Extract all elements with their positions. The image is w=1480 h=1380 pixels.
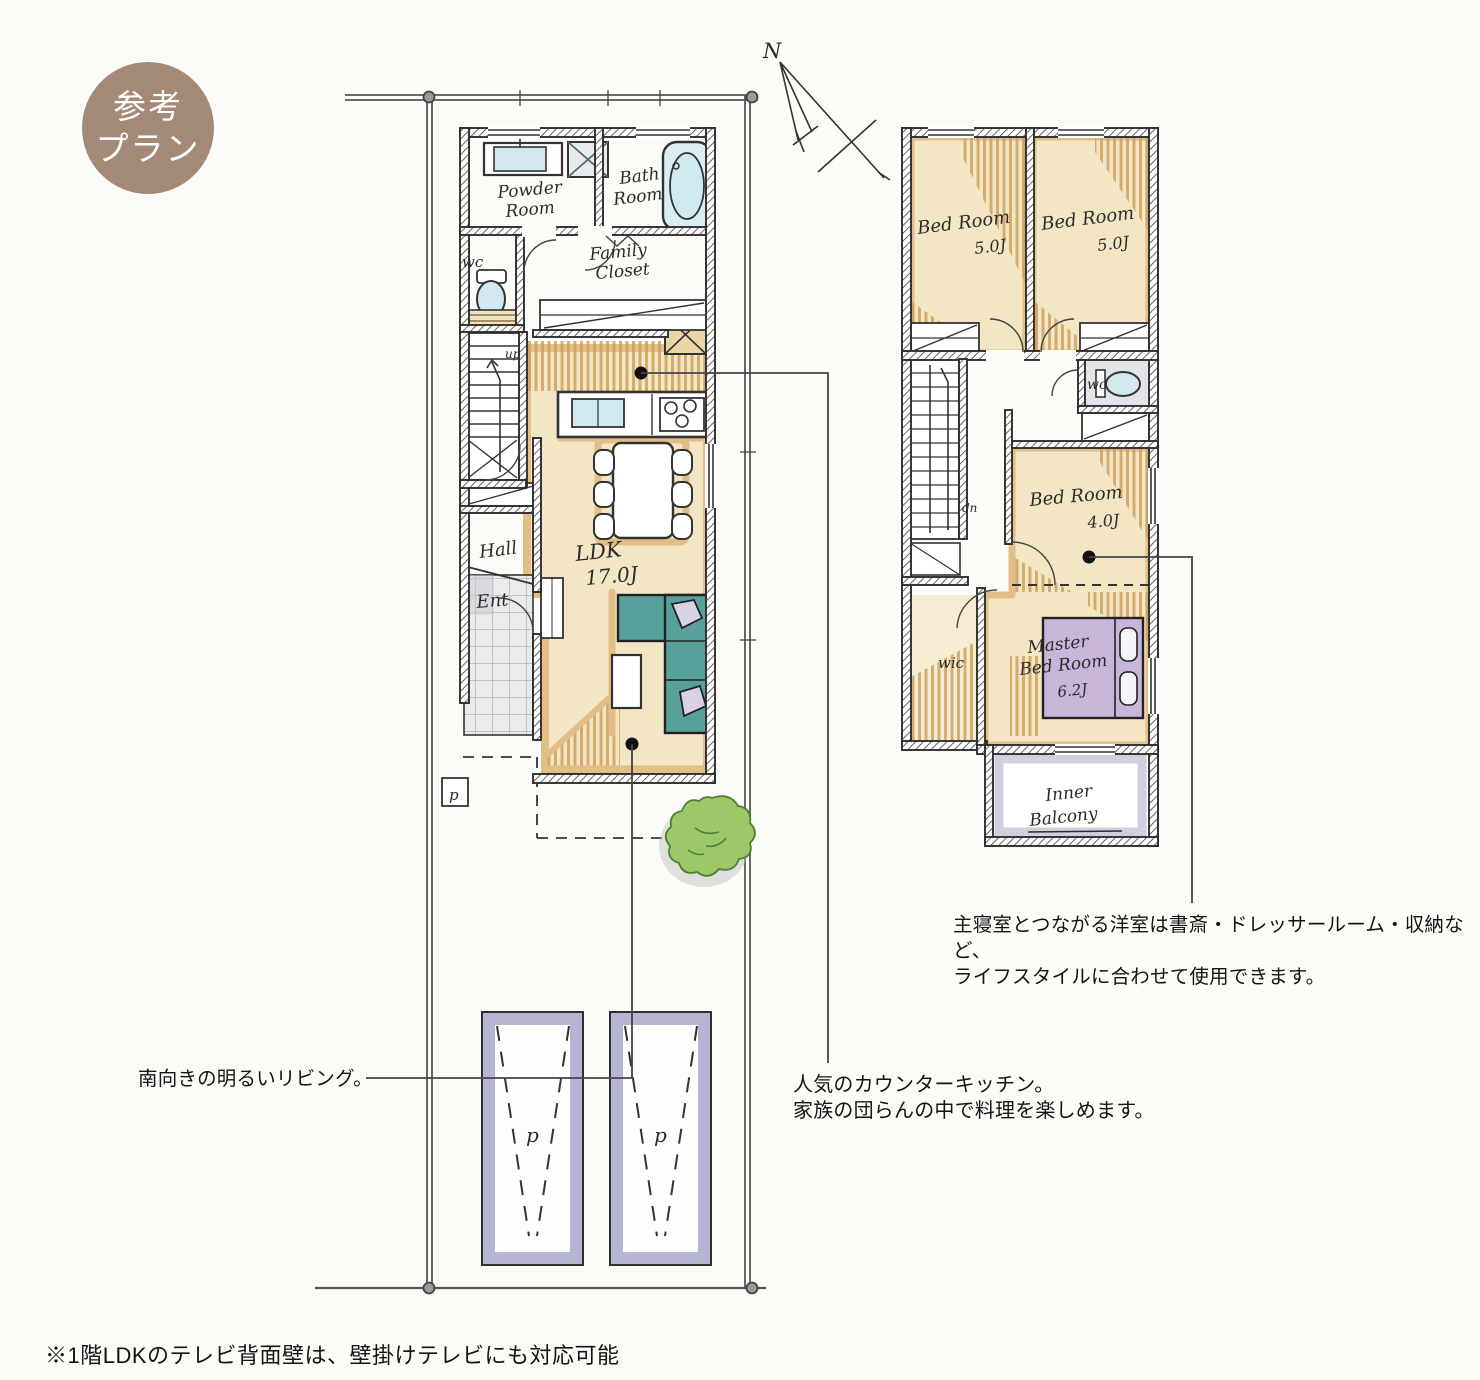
family-closet-shelf bbox=[540, 300, 708, 330]
label-wc-2f: wc bbox=[1087, 377, 1107, 393]
footnote: ※1階LDKのテレビ背面壁は、壁掛けテレビにも対応可能 bbox=[45, 1338, 620, 1370]
north-label: N bbox=[762, 39, 782, 63]
annotation-kitchen-line2: 家族の団らんの中で料理を楽しめます。 bbox=[793, 1098, 1155, 1124]
north-arrow: N bbox=[762, 39, 890, 180]
annotation-bedroom-line1: 主寝室とつながる洋室は書斎・ドレッサールーム・収納など、 bbox=[953, 912, 1480, 964]
page: 参考 プラン bbox=[0, 0, 1480, 1380]
label-ent: Ent bbox=[475, 589, 510, 613]
powder-sink bbox=[494, 147, 546, 171]
annotation-bedroom-line2: ライフスタイルに合わせて使用できます。 bbox=[953, 964, 1480, 990]
label-ldk-size: 17.0J bbox=[584, 561, 639, 590]
label-bath-2: Room bbox=[611, 184, 663, 210]
parking-label-right: p bbox=[654, 1123, 667, 1147]
dining-table bbox=[613, 443, 673, 538]
pillow-1 bbox=[1120, 628, 1137, 661]
label-wic: wic bbox=[938, 654, 965, 672]
annotation-bedroom: 主寝室とつながる洋室は書斎・ドレッサールーム・収納など、 ライフスタイルに合わせ… bbox=[953, 912, 1480, 990]
storage-2f bbox=[1082, 413, 1149, 441]
floor1-plan: Powder Room Bath Room wc Family Closet u… bbox=[442, 126, 755, 1265]
label-ldk: LDK bbox=[573, 537, 624, 566]
label-dn: dn bbox=[962, 501, 977, 515]
parking-stall-right: p bbox=[610, 1012, 711, 1265]
label-powder-2: Room bbox=[504, 198, 556, 222]
bed1-closet bbox=[911, 323, 979, 353]
floorplan-drawing: Powder Room Bath Room wc Family Closet u… bbox=[0, 0, 1480, 1380]
pole-marker: p bbox=[442, 778, 468, 806]
stairs-2f bbox=[909, 359, 960, 575]
floor2-plan: Bed Room 5.0J Bed Room 5.0J wc dn Bed Ro… bbox=[902, 126, 1159, 846]
annotation-kitchen: 人気のカウンターキッチン。 家族の団らんの中で料理を楽しめます。 bbox=[793, 1072, 1155, 1124]
powder-room bbox=[484, 139, 562, 175]
kitchen-counter bbox=[558, 392, 710, 437]
label-bed2-size: 5.0J bbox=[1096, 232, 1132, 255]
label-hall: Hall bbox=[477, 537, 518, 563]
bed2-closet bbox=[1080, 323, 1149, 353]
bathtub bbox=[663, 142, 711, 230]
annotation-living: 南向きの明るいリビング。 bbox=[138, 1066, 373, 1092]
pillow-2 bbox=[1120, 672, 1137, 705]
label-master-size: 6.2J bbox=[1057, 680, 1090, 701]
garden-tree bbox=[659, 796, 755, 887]
label-family-2: Closet bbox=[595, 259, 651, 284]
parking-stall-left: p bbox=[482, 1012, 583, 1265]
label-bed1-size: 5.0J bbox=[973, 235, 1009, 258]
coffee-table bbox=[612, 655, 641, 708]
pole-label: p bbox=[449, 786, 459, 804]
dining-set bbox=[594, 443, 692, 539]
parking-label-left: p bbox=[526, 1123, 539, 1147]
label-wc-1f: wc bbox=[462, 253, 484, 271]
label-bed3-size: 4.0J bbox=[1086, 510, 1122, 532]
label-up: up bbox=[505, 347, 521, 361]
annotation-kitchen-line1: 人気のカウンターキッチン。 bbox=[793, 1072, 1155, 1098]
